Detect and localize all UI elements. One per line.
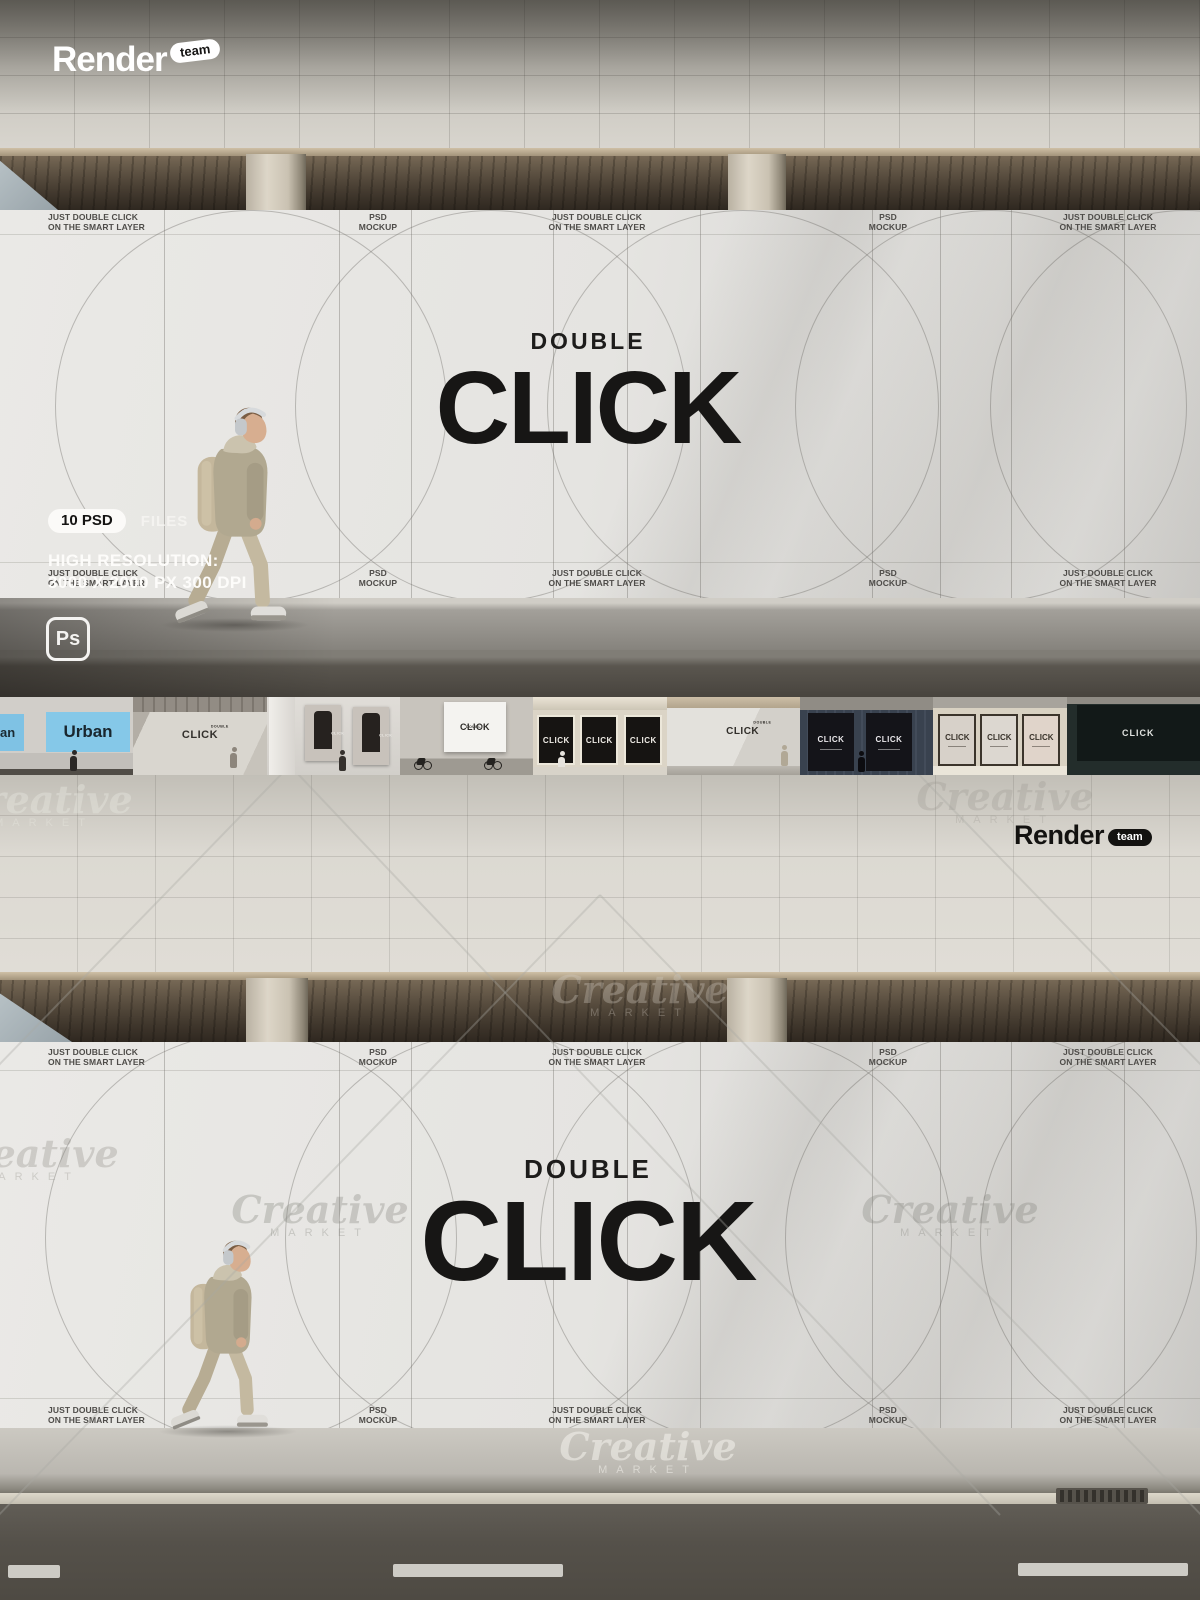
gallery-thumb-underpass[interactable]: DOUBLE CLICK (133, 697, 266, 775)
logo-text: Render (52, 40, 167, 79)
gallery-thumb-beige-storefront[interactable]: CLICK CLICK CLICK (933, 697, 1066, 775)
drain-grate (1056, 1488, 1148, 1504)
lane-marking (1018, 1563, 1188, 1576)
poster: DOUBLE CLICK (182, 723, 218, 739)
logo-badge: team (1108, 829, 1152, 846)
smart-layer-note: JUST DOUBLE CLICKON THE SMART LAYER (48, 1048, 145, 1067)
cyclist (484, 758, 502, 770)
pedestrian (339, 756, 346, 771)
building-column (728, 154, 786, 210)
gallery-strip: an Urban DOUBLE CLICK CLICK CLICK (0, 697, 1200, 775)
smart-layer-note: JUST DOUBLE CLICKON THE SMART LAYER (1060, 213, 1157, 232)
smart-layer-note: JUST DOUBLE CLICKON THE SMART LAYER (549, 213, 646, 232)
poster: DOUBLE CLICK (444, 702, 506, 752)
files-label: FILES (141, 513, 189, 530)
poster: CLICK (980, 714, 1018, 766)
creative-market-watermark: CreativeMARKET (916, 780, 1093, 826)
creative-market-watermark: CreativeMARKET (559, 1430, 736, 1476)
smart-layer-note: JUST DOUBLE CLICKON THE SMART LAYER (48, 1406, 145, 1425)
smart-layer-note: JUST DOUBLE CLICKON THE SMART LAYER (1060, 1048, 1157, 1067)
hero-image-2: JUST DOUBLE CLICKON THE SMART LAYER PSDM… (0, 775, 1200, 1600)
resolution-text: HIGH RESOLUTION: 3000 X 2000 PX 300 DPI (48, 550, 247, 594)
psd-mockup-note: PSDMOCKUP (869, 569, 907, 588)
lane-marking (393, 1564, 563, 1577)
pillar (269, 697, 295, 775)
hero-image-1: JUST DOUBLE CLICKON THE SMART LAYER PSDM… (0, 0, 1200, 697)
gallery-thumb-portrait-posters[interactable]: CLICK CLICK (267, 697, 400, 775)
smart-layer-note: JUST DOUBLE CLICKON THE SMART LAYER (549, 1406, 646, 1425)
building-column (727, 978, 787, 1042)
smart-layer-note: JUST DOUBLE CLICKON THE SMART LAYER (549, 569, 646, 588)
gallery-thumb-storefront-dark[interactable]: CLICK CLICK CLICK (533, 697, 666, 775)
creative-market-watermark: CreativeMARKET (551, 973, 728, 1019)
road-top (800, 697, 933, 710)
ceiling-beams (133, 697, 266, 712)
window-poster: CLICK (624, 715, 662, 765)
road-top (933, 697, 1066, 708)
smart-layer-note: JUST DOUBLE CLICKON THE SMART LAYER (549, 1048, 646, 1067)
poster: CLICK (305, 705, 341, 761)
overhang-fascia (0, 148, 1200, 156)
gallery-thumb-dark-billboard[interactable]: CLICK (1067, 697, 1200, 775)
psd-mockup-note: PSDMOCKUP (359, 569, 397, 588)
building-column (246, 978, 308, 1042)
poster-figure (362, 713, 380, 752)
gallery-thumb-long-wall[interactable]: DOUBLE CLICK (667, 697, 800, 775)
poster: CLICK (1022, 714, 1060, 766)
product-preview-page: JUST DOUBLE CLICKON THE SMART LAYER PSDM… (0, 0, 1200, 1600)
poster: Urban (46, 712, 130, 752)
wall-top (667, 697, 800, 708)
creative-market-watermark: CreativeMARKET (231, 1193, 408, 1239)
walking-man-figure (168, 1227, 280, 1438)
building-column (246, 154, 306, 210)
render-team-logo: Renderteam (52, 40, 217, 80)
billboard-headline-large: CLICK (420, 1185, 755, 1298)
road-top (1067, 697, 1200, 704)
pedestrian (230, 753, 237, 768)
psd-mockup-note: PSDMOCKUP (869, 1048, 907, 1067)
curb-sunlight (0, 1493, 1200, 1504)
smart-layer-note: JUST DOUBLE CLICKON THE SMART LAYER (1060, 1406, 1157, 1425)
psd-mockup-note: PSDMOCKUP (359, 213, 397, 232)
psd-mockup-note: PSDMOCKUP (359, 1048, 397, 1067)
poster: DOUBLE CLICK (726, 719, 759, 735)
photoshop-icon: Ps (46, 617, 90, 661)
creative-market-watermark: CreativeMARKET (0, 783, 133, 829)
walking-man-figure (172, 392, 300, 633)
wood-ceiling (0, 156, 1200, 210)
files-count: 10 PSD FILES (48, 509, 188, 533)
smart-layer-note: JUST DOUBLE CLICKON THE SMART LAYER (48, 213, 145, 232)
pedestrian (781, 751, 788, 766)
road (0, 1504, 1200, 1600)
cornice (533, 697, 666, 710)
logo-badge: team (169, 38, 221, 64)
psd-mockup-note: PSDMOCKUP (869, 1406, 907, 1425)
creative-market-watermark: CreativeMARKET (861, 1193, 1038, 1239)
pedestrian (70, 756, 77, 771)
psd-mockup-note: PSDMOCKUP (869, 213, 907, 232)
sill (933, 766, 1066, 775)
poster: CLICK (808, 713, 854, 771)
poster: CLICK (353, 707, 389, 765)
poster: CLICK (938, 714, 976, 766)
sidewalk (533, 767, 666, 775)
gallery-thumb-navy-storefront[interactable]: CLICK CLICK (800, 697, 933, 775)
poster-figure (314, 711, 332, 749)
cyclist (414, 758, 432, 770)
billboard-headline-large: CLICK (436, 356, 741, 459)
files-badge: 10 PSD (48, 509, 126, 533)
gallery-thumb-square-poster[interactable]: DOUBLE CLICK (400, 697, 533, 775)
creative-market-watermark: CreativeMARKET (0, 1137, 119, 1183)
gallery-thumb-urban[interactable]: an Urban (0, 697, 133, 775)
pedestrian (858, 757, 865, 772)
lane-marking (8, 1565, 60, 1578)
psd-mockup-note: PSDMOCKUP (359, 1406, 397, 1425)
poster-partial: an (0, 714, 24, 751)
smart-layer-note: JUST DOUBLE CLICKON THE SMART LAYER (1060, 569, 1157, 588)
poster: CLICK (866, 713, 912, 771)
window-poster: CLICK (580, 715, 618, 765)
ground (667, 766, 800, 775)
window-poster: CLICK (537, 715, 575, 765)
poster: CLICK (1077, 705, 1200, 761)
